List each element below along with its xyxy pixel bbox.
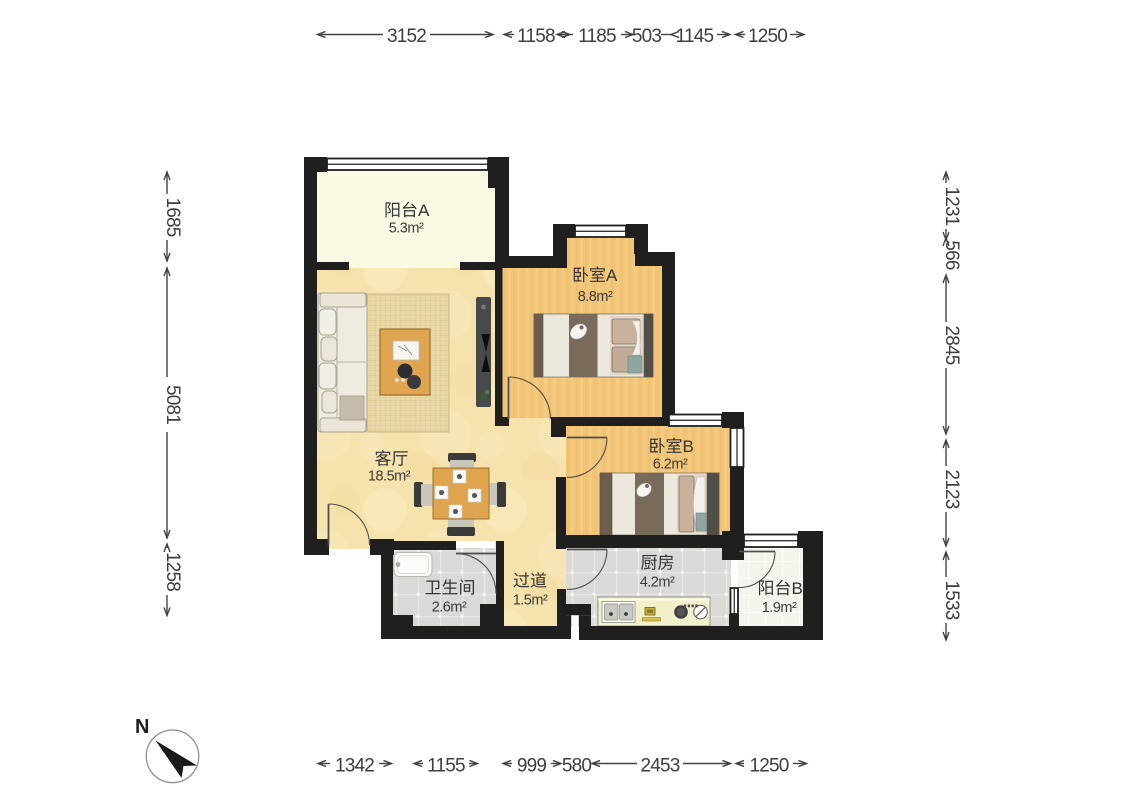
svg-text:4.2m²: 4.2m² — [640, 575, 675, 591]
svg-text:1685: 1685 — [162, 197, 183, 236]
svg-text:8.8m²: 8.8m² — [578, 289, 613, 305]
svg-text:5081: 5081 — [162, 385, 183, 424]
svg-text:1158: 1158 — [517, 26, 555, 47]
svg-text:1250: 1250 — [749, 756, 788, 777]
svg-text:18.5m²: 18.5m² — [368, 469, 411, 485]
svg-text:2453: 2453 — [640, 756, 679, 777]
svg-text:1533: 1533 — [941, 580, 962, 619]
svg-text:N: N — [135, 716, 149, 738]
svg-text:1145: 1145 — [676, 26, 714, 47]
svg-text:1185: 1185 — [578, 26, 616, 47]
svg-text:1.9m²: 1.9m² — [762, 600, 797, 616]
svg-text:2845: 2845 — [941, 325, 962, 364]
svg-text:B: B — [792, 579, 803, 598]
svg-text:999: 999 — [517, 756, 547, 777]
svg-text:580: 580 — [562, 756, 592, 777]
svg-text:503: 503 — [632, 26, 662, 47]
svg-text:3152: 3152 — [387, 26, 426, 47]
svg-text:1258: 1258 — [162, 552, 183, 591]
svg-text:1250: 1250 — [748, 26, 787, 47]
svg-text:2123: 2123 — [941, 469, 962, 508]
svg-text:2.6m²: 2.6m² — [432, 600, 467, 616]
svg-text:A: A — [418, 201, 430, 220]
svg-text:A: A — [606, 266, 618, 285]
svg-text:1.5m²: 1.5m² — [513, 593, 548, 609]
svg-text:1155: 1155 — [427, 756, 465, 777]
svg-text:1342: 1342 — [335, 756, 374, 777]
svg-text:6.2m²: 6.2m² — [653, 457, 688, 473]
svg-text:B: B — [683, 437, 694, 456]
svg-text:1231: 1231 — [941, 186, 962, 225]
svg-text:5.3m²: 5.3m² — [389, 221, 424, 237]
